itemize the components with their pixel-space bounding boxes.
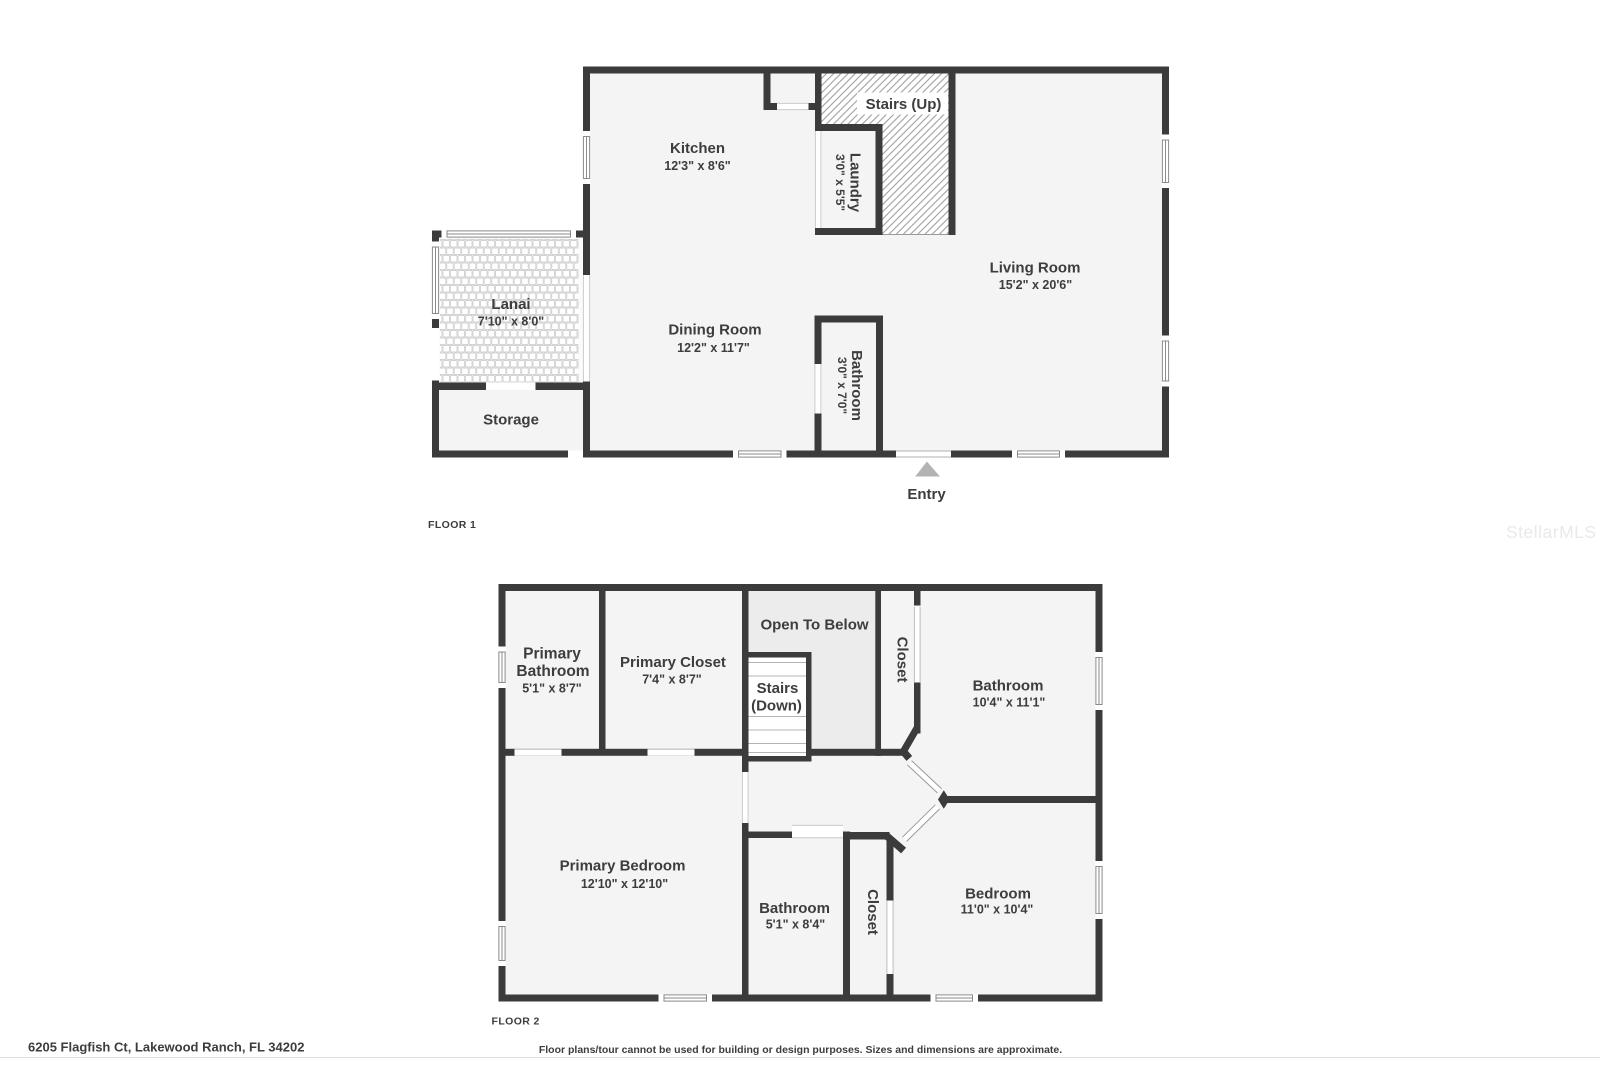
svg-text:Floor plans/tour cannot be use: Floor plans/tour cannot be used for buil… [539, 1044, 1062, 1056]
svg-text:11'0" x 10'4": 11'0" x 10'4" [961, 903, 1034, 917]
svg-text:Closet: Closet [864, 889, 881, 935]
svg-text:5'1" x 8'7": 5'1" x 8'7" [522, 682, 582, 696]
svg-text:7'4" x 8'7": 7'4" x 8'7" [642, 673, 702, 687]
svg-text:Closet: Closet [894, 637, 911, 683]
svg-text:3'0" x 7'0": 3'0" x 7'0" [835, 357, 849, 414]
svg-text:Primary Closet: Primary Closet [620, 654, 726, 671]
svg-text:FLOOR 2: FLOOR 2 [492, 1016, 540, 1028]
svg-text:Entry: Entry [907, 486, 946, 503]
svg-text:Bathroom: Bathroom [759, 900, 830, 917]
svg-text:12'3" x 8'6": 12'3" x 8'6" [664, 159, 731, 173]
svg-text:Bathroom: Bathroom [848, 350, 865, 421]
svg-text:7'10" x 8'0": 7'10" x 8'0" [478, 315, 545, 329]
svg-text:Open To Below: Open To Below [760, 617, 868, 634]
svg-text:Laundry: Laundry [847, 153, 864, 213]
svg-text:Dining Room: Dining Room [668, 322, 761, 339]
svg-text:15'2" x 20'6": 15'2" x 20'6" [999, 278, 1072, 292]
svg-text:12'10" x 12'10": 12'10" x 12'10" [581, 877, 668, 891]
svg-text:Primary Bedroom: Primary Bedroom [560, 858, 686, 875]
svg-text:Stairs: Stairs [757, 680, 799, 697]
svg-text:Bedroom: Bedroom [965, 886, 1031, 903]
svg-text:3'0" x 5'5": 3'0" x 5'5" [833, 154, 847, 211]
svg-text:Storage: Storage [483, 412, 539, 429]
svg-text:StellarMLS: StellarMLS [1506, 522, 1597, 542]
svg-text:6205 Flagfish Ct, Lakewood Ran: 6205 Flagfish Ct, Lakewood Ranch, FL 342… [28, 1040, 304, 1055]
svg-text:(Down): (Down) [751, 698, 802, 715]
svg-text:5'1" x 8'4": 5'1" x 8'4" [766, 918, 826, 932]
svg-text:Primary: Primary [523, 646, 581, 663]
svg-text:FLOOR 1: FLOOR 1 [428, 519, 476, 531]
svg-text:Lanai: Lanai [491, 296, 530, 313]
svg-text:12'2" x 11'7": 12'2" x 11'7" [677, 341, 750, 355]
svg-text:Living Room: Living Room [990, 260, 1081, 277]
svg-text:Bathroom: Bathroom [516, 663, 589, 680]
svg-text:10'4" x 11'1": 10'4" x 11'1" [973, 696, 1046, 710]
svg-text:Bathroom: Bathroom [973, 678, 1044, 695]
svg-text:Stairs (Up): Stairs (Up) [866, 96, 942, 113]
svg-text:Kitchen: Kitchen [670, 140, 725, 157]
